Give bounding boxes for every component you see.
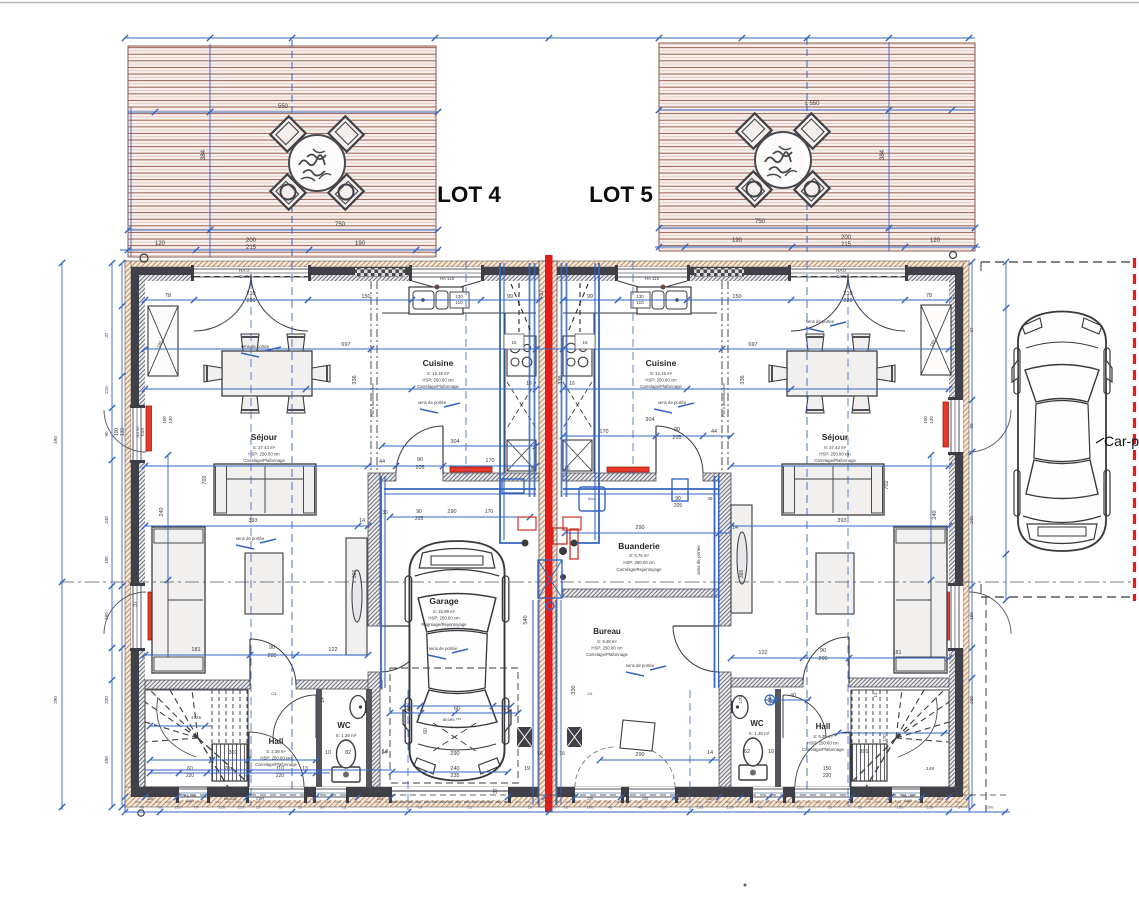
- svg-text:336: 336: [558, 375, 564, 384]
- svg-text:120: 120: [927, 805, 934, 810]
- svg-text:393: 393: [248, 518, 257, 524]
- svg-text:384: 384: [880, 149, 886, 160]
- svg-text:115: 115: [501, 706, 510, 712]
- svg-text:190: 190: [355, 241, 366, 247]
- svg-text:697: 697: [748, 342, 757, 348]
- svg-text:Bureau: Bureau: [593, 627, 621, 636]
- svg-text:O1: O1: [587, 691, 593, 696]
- svg-text:14: 14: [707, 750, 713, 756]
- svg-text:49: 49: [140, 805, 145, 810]
- svg-text:Carrelage/Plafonnage: Carrelage/Plafonnage: [243, 458, 285, 463]
- svg-text:702: 702: [202, 475, 208, 484]
- svg-text:Hall: Hall: [816, 722, 831, 731]
- svg-text:HA 100: HA 100: [184, 794, 196, 798]
- svg-text:sens de portée: sens de portée: [236, 536, 265, 541]
- svg-text:220: 220: [823, 773, 832, 779]
- svg-text:205: 205: [818, 656, 827, 662]
- svg-text:170: 170: [485, 509, 494, 515]
- svg-text:290: 290: [447, 509, 456, 515]
- svg-text:S: 1.35 m²: S: 1.35 m²: [749, 731, 770, 736]
- svg-text:14: 14: [359, 518, 365, 524]
- svg-text:170: 170: [485, 458, 494, 464]
- svg-text:82: 82: [345, 750, 351, 756]
- svg-text:90: 90: [416, 509, 422, 515]
- svg-text:Hall: Hall: [269, 737, 284, 746]
- svg-text:37: 37: [493, 788, 499, 794]
- svg-text:702: 702: [884, 480, 890, 489]
- svg-text:210: 210: [843, 291, 852, 297]
- svg-text:130: 130: [929, 416, 934, 424]
- svg-text:accès ***: accès ***: [443, 717, 462, 722]
- svg-text:HSP: 250.00 cm: HSP: 250.00 cm: [623, 560, 655, 565]
- svg-text:290: 290: [450, 751, 459, 757]
- svg-text:16: 16: [528, 805, 533, 810]
- svg-text:235: 235: [450, 773, 459, 779]
- svg-text:99: 99: [587, 294, 593, 300]
- svg-text:Pas à dimensionner: Pas à dimensionner: [371, 382, 375, 416]
- svg-text:60: 60: [423, 728, 429, 734]
- svg-text:301: 301: [859, 749, 868, 755]
- svg-text:Pas à dimensionner: Pas à dimensionner: [722, 382, 726, 416]
- svg-text:115: 115: [404, 706, 413, 712]
- svg-text:330: 330: [571, 685, 577, 694]
- svg-text:HSP: 250.00 cm: HSP: 250.00 cm: [248, 452, 280, 457]
- svg-text:CAR: CAR: [706, 797, 714, 801]
- svg-text:220: 220: [175, 805, 182, 810]
- svg-text:130: 130: [636, 294, 644, 299]
- svg-text:170: 170: [599, 429, 608, 435]
- svg-text:37: 37: [135, 294, 141, 300]
- svg-text:100: 100: [162, 416, 167, 424]
- svg-text:60: 60: [158, 805, 163, 810]
- svg-text:CAR: CAR: [239, 274, 249, 279]
- svg-text:16: 16: [511, 340, 517, 345]
- svg-text:120: 120: [155, 241, 166, 247]
- svg-text:HSP: 250.00 cm: HSP: 250.00 cm: [819, 452, 851, 457]
- svg-text:37: 37: [958, 805, 963, 810]
- svg-text:14: 14: [873, 692, 878, 698]
- svg-text:240: 240: [104, 516, 109, 524]
- svg-text:HA 120: HA 120: [224, 797, 236, 801]
- svg-text:40: 40: [638, 805, 643, 810]
- svg-text:100: 100: [897, 805, 904, 810]
- svg-text:366: 366: [352, 570, 358, 579]
- svg-text:Cuisine: Cuisine: [423, 358, 454, 368]
- svg-text:120: 120: [930, 238, 941, 244]
- svg-text:750: 750: [755, 219, 766, 225]
- svg-text:304: 304: [450, 439, 459, 445]
- svg-text:70: 70: [194, 805, 199, 810]
- svg-text:Ragréage/Rejointoyage: Ragréage/Rejointoyage: [421, 622, 467, 627]
- svg-text:336: 336: [352, 375, 358, 384]
- svg-text:14: 14: [381, 750, 387, 756]
- svg-text:S: 27.43 m²: S: 27.43 m²: [253, 445, 276, 450]
- svg-text:100: 100: [104, 556, 109, 564]
- svg-text:19: 19: [524, 766, 530, 772]
- svg-text:sens de portée: sens de portée: [429, 646, 458, 651]
- svg-text:44: 44: [379, 459, 385, 465]
- svg-text:CAR: CAR: [256, 797, 264, 801]
- svg-text:16: 16: [582, 340, 588, 345]
- svg-text:13: 13: [256, 805, 261, 810]
- svg-text:697: 697: [341, 342, 350, 348]
- svg-text:37: 37: [953, 294, 959, 300]
- svg-text:210: 210: [104, 386, 109, 394]
- svg-text:205: 205: [415, 465, 424, 471]
- svg-text:490: 490: [53, 436, 58, 444]
- svg-text:44: 44: [711, 429, 717, 435]
- svg-text:Carrelage/Plafonnage: Carrelage/Plafonnage: [586, 652, 628, 657]
- svg-text:290: 290: [635, 752, 644, 758]
- svg-text:14: 14: [320, 697, 326, 703]
- svg-text:366: 366: [739, 570, 745, 579]
- svg-text:99: 99: [507, 294, 513, 300]
- svg-text:16: 16: [564, 466, 570, 472]
- svg-text:sens de portée: sens de portée: [626, 663, 655, 668]
- svg-text:393: 393: [837, 518, 846, 524]
- svg-text:HA 100: HA 100: [902, 794, 914, 798]
- svg-text:120: 120: [727, 805, 734, 810]
- svg-text:LOT 4: LOT 4: [437, 182, 501, 207]
- svg-text:37: 37: [133, 601, 139, 607]
- svg-text:16: 16: [564, 805, 569, 810]
- svg-text:290: 290: [635, 525, 644, 531]
- svg-text:301: 301: [228, 750, 237, 756]
- svg-text:S: 12.15 m²: S: 12.15 m²: [427, 371, 450, 376]
- svg-text:10: 10: [768, 749, 774, 755]
- svg-text:Carrelage/Plafonnage: Carrelage/Plafonnage: [417, 384, 459, 389]
- svg-text:150: 150: [823, 766, 832, 772]
- svg-text:150: 150: [797, 805, 804, 810]
- svg-text:304: 304: [645, 417, 654, 423]
- svg-text:Cuisine: Cuisine: [646, 358, 677, 368]
- svg-text:30: 30: [382, 510, 388, 516]
- svg-text:130: 130: [168, 416, 173, 424]
- svg-text:sens de portée: sens de portée: [418, 400, 447, 405]
- svg-text:HA 0: HA 0: [239, 268, 249, 273]
- svg-text:Garage: Garage: [429, 596, 459, 606]
- svg-text:Séjour: Séjour: [251, 432, 278, 442]
- svg-text:120: 120: [642, 797, 648, 801]
- svg-text:336: 336: [740, 375, 746, 384]
- svg-text:120: 120: [937, 797, 943, 801]
- svg-text:110: 110: [636, 300, 644, 305]
- svg-text:110: 110: [219, 805, 226, 810]
- svg-text:Carrelage/Rejointoyage: Carrelage/Rejointoyage: [616, 567, 662, 572]
- svg-text:40: 40: [608, 805, 613, 810]
- svg-text:240: 240: [159, 507, 165, 516]
- svg-text:37: 37: [133, 524, 139, 530]
- svg-text:90: 90: [417, 457, 423, 463]
- svg-text:16: 16: [526, 381, 532, 387]
- svg-text:90: 90: [820, 648, 826, 654]
- svg-text:90: 90: [269, 645, 275, 651]
- svg-text:130: 130: [455, 294, 463, 299]
- svg-text:200: 200: [841, 235, 852, 241]
- svg-text:Carrelage/Plafonnage: Carrelage/Plafonnage: [640, 384, 682, 389]
- svg-text:220: 220: [843, 298, 852, 304]
- svg-text:16: 16: [569, 381, 575, 387]
- svg-text:170: 170: [882, 734, 887, 742]
- svg-text:HA 0: HA 0: [836, 268, 846, 273]
- svg-text:CAR: CAR: [140, 428, 145, 437]
- svg-text:37: 37: [957, 526, 963, 532]
- svg-text:120: 120: [377, 797, 383, 801]
- svg-text:S: 5.76 m²: S: 5.76 m²: [629, 553, 649, 558]
- svg-text:170: 170: [738, 696, 743, 704]
- svg-text:19: 19: [828, 805, 833, 810]
- svg-text:60: 60: [187, 766, 193, 772]
- svg-text:29: 29: [662, 805, 667, 810]
- svg-text:205: 205: [672, 435, 681, 441]
- svg-text:S: 15.99 m²: S: 15.99 m²: [433, 609, 456, 614]
- svg-text:205: 205: [674, 503, 683, 509]
- svg-text:Carrelage/Plafonnage: Carrelage/Plafonnage: [814, 458, 856, 463]
- svg-text:WC: WC: [750, 719, 764, 728]
- svg-text:HA 110: HA 110: [440, 276, 455, 281]
- svg-text:70: 70: [224, 766, 230, 772]
- svg-text:Buanderie: Buanderie: [618, 541, 660, 551]
- svg-text:290: 290: [53, 696, 58, 704]
- svg-text:37: 37: [104, 332, 109, 338]
- svg-text:210: 210: [246, 291, 255, 297]
- svg-text:35: 35: [707, 496, 713, 501]
- svg-text:130: 130: [120, 428, 126, 437]
- svg-text:S: 12.15 m²: S: 12.15 m²: [650, 371, 673, 376]
- svg-text:37: 37: [539, 290, 545, 296]
- svg-text:HSP: 250.00 cm: HSP: 250.00 cm: [645, 378, 677, 383]
- svg-text:110: 110: [276, 766, 284, 772]
- svg-text:16: 16: [528, 466, 534, 472]
- svg-text:215: 215: [841, 242, 852, 248]
- svg-text:sens de portée: sens de portée: [806, 319, 835, 324]
- svg-text:220: 220: [238, 805, 245, 810]
- svg-text:sens de portée: sens de portée: [696, 545, 701, 575]
- svg-text:CAR: CAR: [904, 799, 912, 803]
- svg-text:205: 205: [267, 653, 276, 659]
- svg-text:750: 750: [335, 222, 346, 228]
- svg-text:sens de portée: sens de portée: [658, 400, 687, 405]
- svg-text:120: 120: [867, 797, 873, 801]
- svg-text:37: 37: [969, 327, 974, 333]
- svg-text:120: 120: [147, 797, 153, 801]
- svg-text:40: 40: [790, 693, 796, 699]
- svg-text:200: 200: [246, 238, 257, 244]
- svg-text:HA 110: HA 110: [645, 276, 660, 281]
- svg-text:190: 190: [732, 238, 743, 244]
- svg-text:220: 220: [276, 773, 285, 779]
- svg-text:HSP: 250.00 cm: HSP: 250.00 cm: [591, 646, 623, 651]
- svg-text:S: 5.35 m²: S: 5.35 m²: [813, 734, 833, 739]
- svg-text:S: 2.39 m²: S: 2.39 m²: [266, 749, 286, 754]
- svg-text:160: 160: [104, 612, 109, 620]
- svg-text:19: 19: [418, 805, 423, 810]
- svg-text:150: 150: [732, 294, 741, 300]
- svg-text:O1: O1: [271, 691, 277, 696]
- svg-text:62: 62: [279, 805, 284, 810]
- svg-text:78: 78: [926, 293, 932, 299]
- svg-text:90: 90: [674, 427, 680, 433]
- svg-text:90: 90: [320, 805, 325, 810]
- svg-text:Car-p: Car-p: [1104, 433, 1139, 449]
- svg-text:40: 40: [758, 805, 763, 810]
- svg-text:HA 120: HA 120: [674, 797, 686, 801]
- svg-text:100: 100: [587, 805, 594, 810]
- svg-text:215: 215: [246, 245, 257, 251]
- svg-text:122: 122: [758, 650, 767, 656]
- svg-text:sens de portée: sens de portée: [241, 344, 270, 349]
- svg-text:16: 16: [537, 751, 543, 757]
- svg-text:LOT 5: LOT 5: [589, 182, 653, 207]
- svg-text:100: 100: [697, 805, 704, 810]
- svg-text:S: 9.48 m²: S: 9.48 m²: [597, 639, 617, 644]
- svg-text:1725: 1725: [191, 715, 202, 720]
- svg-text:13: 13: [342, 805, 347, 810]
- svg-text:181: 181: [892, 650, 901, 656]
- svg-text:Carrelage/Plafonnage: Carrelage/Plafonnage: [802, 747, 844, 752]
- svg-text:160: 160: [969, 612, 974, 620]
- svg-text:29: 29: [858, 805, 863, 810]
- svg-text:14: 14: [768, 697, 774, 703]
- svg-text:490: 490: [104, 756, 109, 764]
- svg-text:90: 90: [969, 423, 974, 429]
- svg-text:HSP: 250.00 cm: HSP: 250.00 cm: [422, 378, 454, 383]
- svg-text:120: 120: [587, 797, 593, 801]
- svg-text:62: 62: [744, 749, 750, 755]
- svg-text:90: 90: [675, 496, 681, 502]
- svg-text:CAR: CAR: [186, 799, 194, 803]
- svg-text:10: 10: [298, 805, 303, 810]
- svg-text:110: 110: [455, 300, 463, 305]
- svg-text:78: 78: [165, 293, 171, 299]
- svg-text:10: 10: [325, 750, 331, 756]
- svg-text:384: 384: [201, 149, 207, 160]
- svg-text:220: 220: [104, 696, 109, 704]
- svg-text:HSP: 250.00 cm: HSP: 250.00 cm: [428, 616, 460, 621]
- svg-text:CAR: CAR: [836, 274, 846, 279]
- svg-text:240: 240: [450, 766, 459, 772]
- svg-text:WC: WC: [337, 721, 351, 730]
- svg-text:HSP: 250.00 cm: HSP: 250.00 cm: [807, 741, 839, 746]
- svg-text:100: 100: [923, 416, 928, 424]
- svg-text:240: 240: [969, 516, 974, 524]
- svg-text:181: 181: [191, 647, 200, 653]
- svg-text:S: 1.35 m²: S: 1.35 m²: [336, 733, 357, 738]
- svg-text:540: 540: [523, 615, 529, 624]
- svg-text:148: 148: [926, 766, 934, 772]
- svg-text:122: 122: [328, 647, 337, 653]
- svg-text:Séjour: Séjour: [822, 432, 849, 442]
- svg-text:90: 90: [104, 431, 109, 437]
- svg-text:240: 240: [932, 510, 938, 519]
- svg-text:290: 290: [987, 805, 994, 810]
- svg-text:S: 27.43 m²: S: 27.43 m²: [824, 445, 847, 450]
- svg-text:220: 220: [246, 298, 255, 304]
- svg-text:550: 550: [278, 104, 289, 110]
- svg-text:150: 150: [361, 294, 370, 300]
- svg-text:220: 220: [969, 696, 974, 704]
- svg-text:220: 220: [186, 773, 195, 779]
- svg-text:16: 16: [559, 751, 565, 757]
